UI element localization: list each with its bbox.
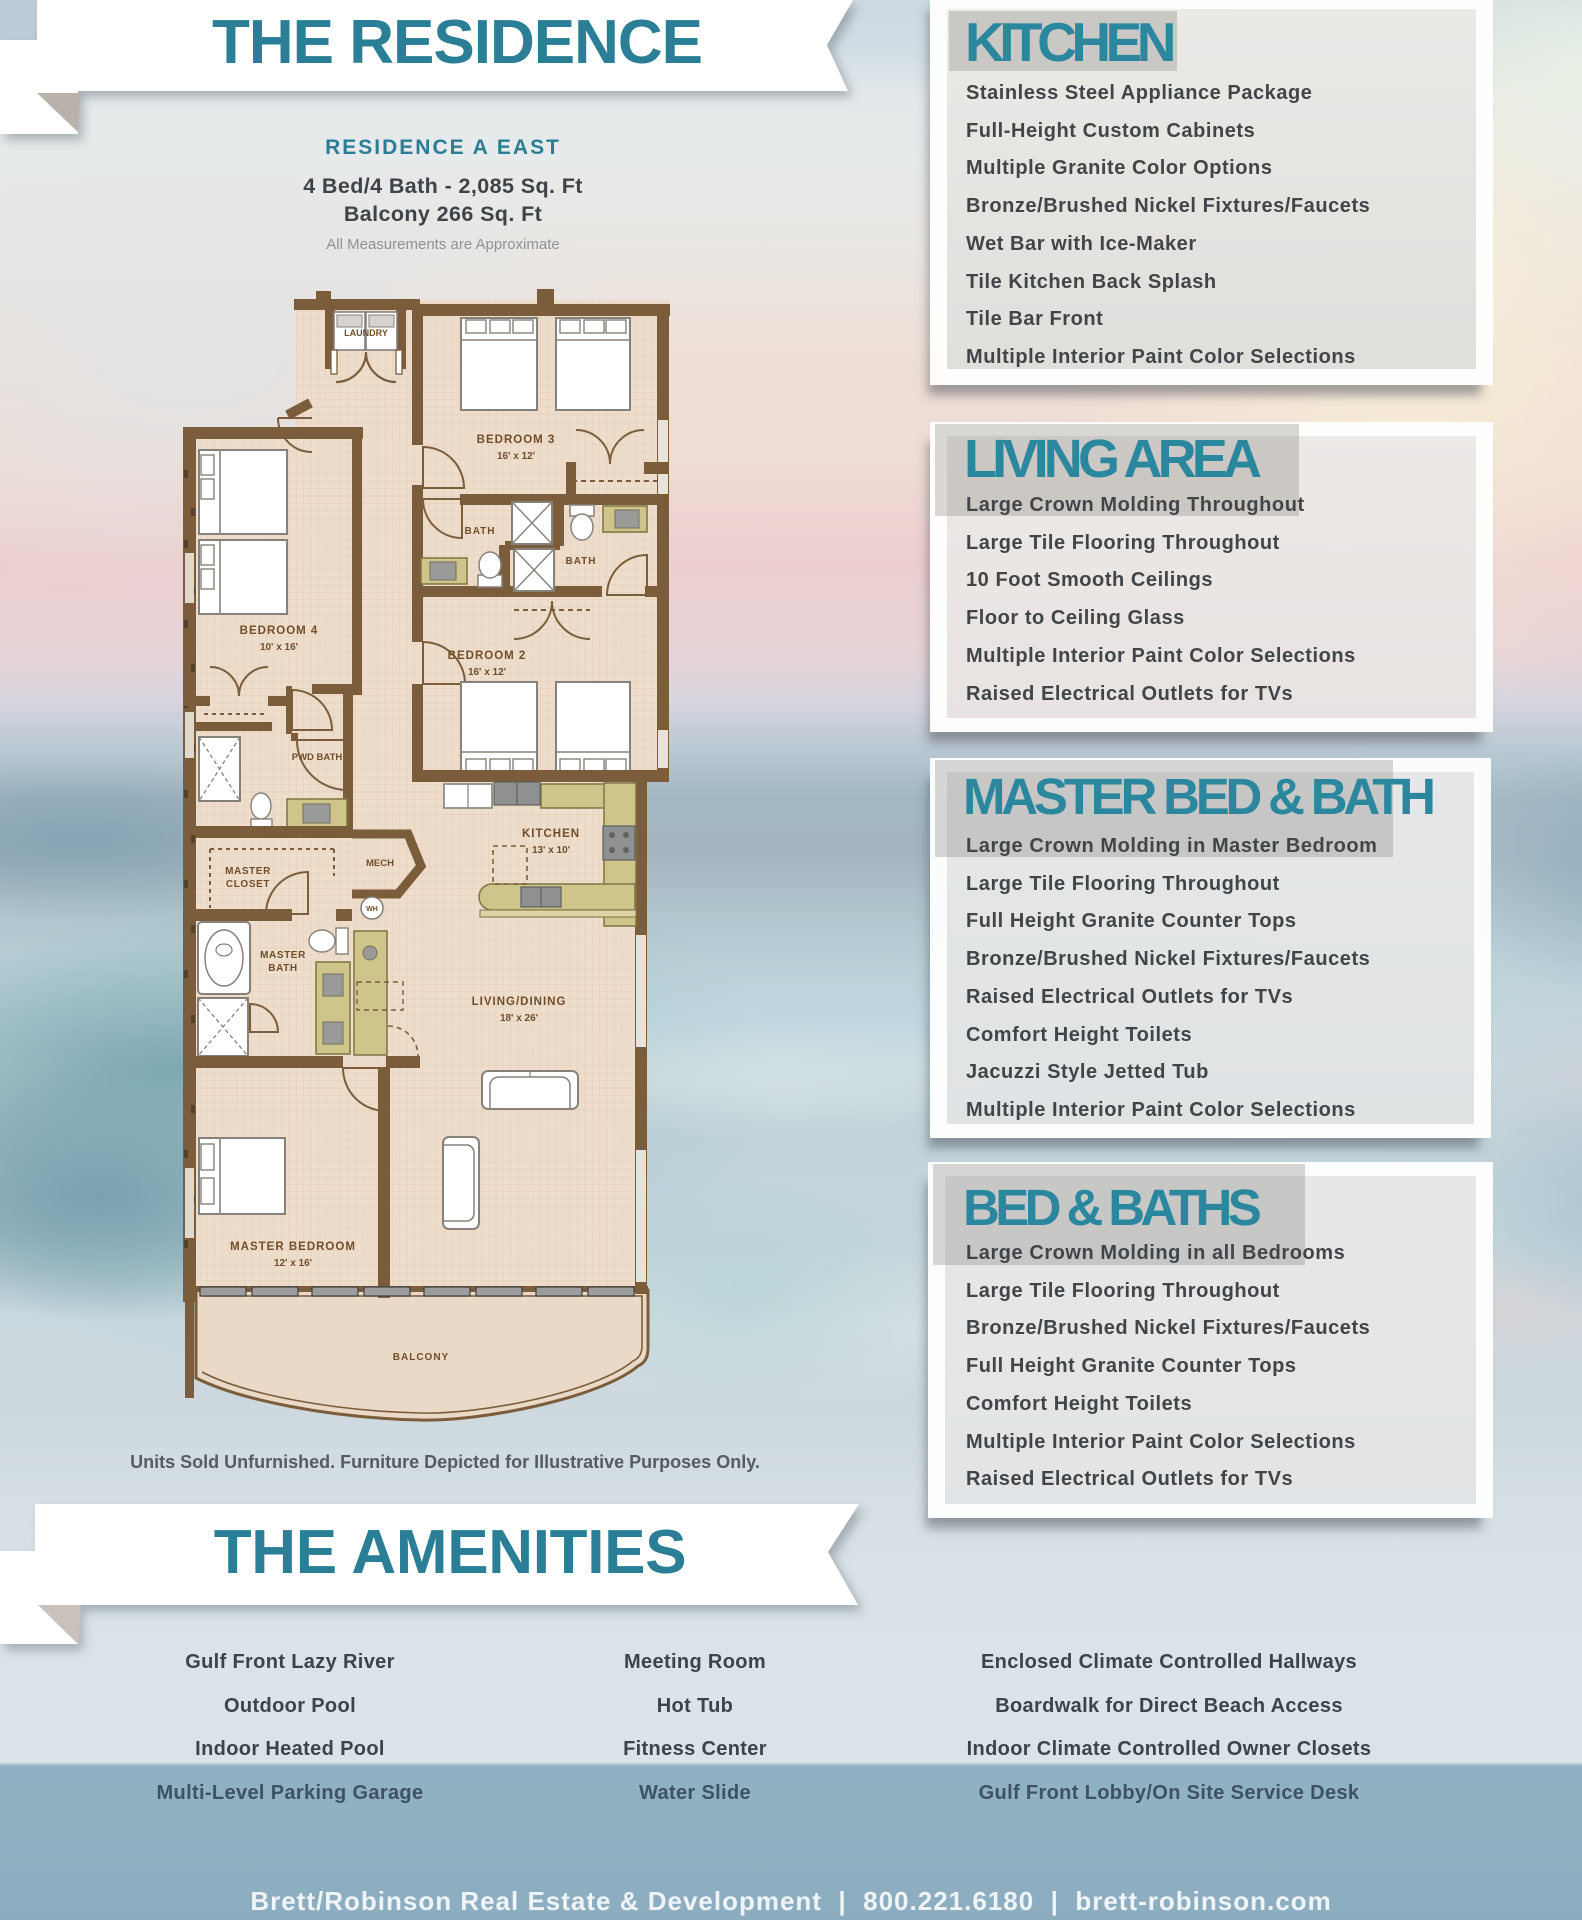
svg-text:LIVING/DINING: LIVING/DINING bbox=[472, 996, 567, 1008]
svg-text:12' x 16': 12' x 16' bbox=[274, 1258, 312, 1269]
svg-text:BATH: BATH bbox=[565, 556, 596, 567]
svg-text:13' x 10': 13' x 10' bbox=[532, 845, 570, 856]
svg-text:BEDROOM 3: BEDROOM 3 bbox=[477, 434, 556, 446]
svg-text:BATH: BATH bbox=[268, 963, 297, 974]
svg-text:MASTER: MASTER bbox=[260, 950, 306, 961]
svg-text:MASTER BEDROOM: MASTER BEDROOM bbox=[230, 1241, 356, 1253]
svg-text:18' x 26': 18' x 26' bbox=[500, 1013, 538, 1024]
svg-text:KITCHEN: KITCHEN bbox=[522, 828, 580, 840]
svg-text:BALCONY: BALCONY bbox=[393, 1352, 449, 1363]
svg-text:BEDROOM 2: BEDROOM 2 bbox=[448, 650, 527, 662]
svg-text:16' x 12': 16' x 12' bbox=[497, 451, 535, 462]
svg-text:WH: WH bbox=[366, 906, 378, 913]
svg-text:LAUNDRY: LAUNDRY bbox=[344, 328, 388, 338]
svg-text:CLOSET: CLOSET bbox=[226, 879, 270, 890]
svg-text:10' x 16': 10' x 16' bbox=[260, 642, 298, 653]
svg-text:BEDROOM 4: BEDROOM 4 bbox=[240, 625, 319, 637]
svg-text:BATH: BATH bbox=[464, 526, 495, 537]
svg-text:PWD BATH: PWD BATH bbox=[292, 752, 343, 763]
svg-text:MASTER: MASTER bbox=[225, 866, 271, 877]
svg-text:MECH: MECH bbox=[366, 858, 394, 869]
svg-text:16' x 12': 16' x 12' bbox=[468, 667, 506, 678]
